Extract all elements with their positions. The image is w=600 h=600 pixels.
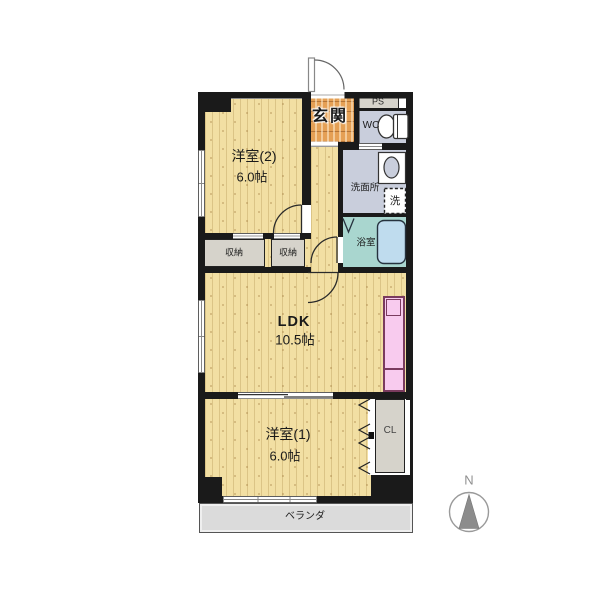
window-south	[223, 497, 317, 503]
label-washroom: 洗面所	[351, 183, 380, 193]
label-laundry: 洗	[390, 196, 401, 207]
label-storage-right: 収納	[279, 249, 297, 258]
label-ldk-size: 10.5帖	[275, 333, 315, 347]
label-bathroom: 浴室	[356, 238, 375, 248]
label-closet: CL	[384, 426, 397, 436]
closet-box	[375, 399, 405, 473]
sliding-door-ldk-western1	[238, 393, 333, 399]
kitchen-sink	[386, 299, 401, 316]
label-pipe-space: PS	[372, 98, 384, 107]
label-western2-size: 6.0帖	[236, 171, 267, 184]
label-entrance: 玄関	[312, 109, 348, 125]
hallway-floor	[311, 143, 338, 273]
entrance-door	[309, 58, 345, 92]
western-room1-floor	[205, 399, 371, 496]
label-storage-left: 収納	[225, 249, 243, 258]
label-ldk-name: LDK	[278, 315, 311, 330]
label-toilet: WC	[363, 121, 380, 131]
label-balcony: ベランダ	[285, 512, 325, 522]
label-compass-north: N	[464, 474, 473, 487]
washroom-entry-opening	[359, 144, 382, 150]
label-western1-size: 6.0帖	[269, 450, 300, 463]
window-west-upper	[199, 150, 205, 217]
kitchen-counter-divider	[384, 368, 404, 370]
closet-door-track	[368, 399, 375, 475]
window-west-lower	[199, 300, 205, 373]
floorplan-canvas: 玄関 PS WC 洗面所 洗 浴室 洋室(2) 6.0帖 収納 収納 LDK 1…	[0, 0, 600, 600]
label-western1-name: 洋室(1)	[265, 427, 310, 441]
compass-icon	[450, 493, 489, 532]
label-western2-name: 洋室(2)	[231, 149, 276, 163]
